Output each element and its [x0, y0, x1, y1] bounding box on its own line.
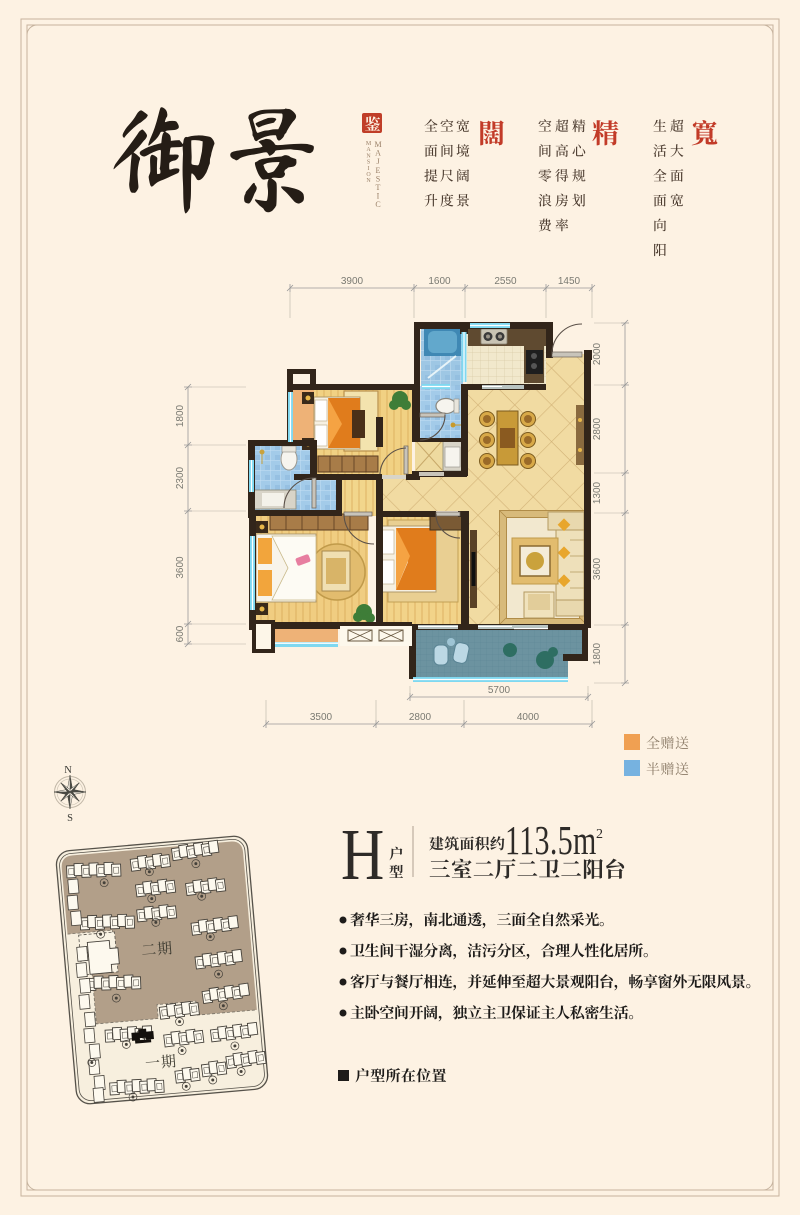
- svg-text:2000: 2000: [592, 342, 603, 365]
- svg-text:2800: 2800: [409, 712, 432, 723]
- svg-text:H: H: [341, 816, 384, 896]
- svg-text:2: 2: [596, 827, 603, 842]
- svg-text:1300: 1300: [592, 481, 603, 504]
- svg-text:M: M: [366, 141, 372, 147]
- svg-text:I: I: [368, 166, 370, 172]
- svg-text:C: C: [375, 200, 380, 209]
- svg-text:1450: 1450: [558, 276, 581, 287]
- svg-text:600: 600: [175, 625, 186, 642]
- svg-text:S: S: [367, 160, 370, 166]
- svg-text:4000: 4000: [517, 712, 540, 723]
- svg-text:2800: 2800: [592, 417, 603, 440]
- svg-text:5700: 5700: [488, 685, 511, 696]
- svg-text:113.5m: 113.5m: [505, 817, 597, 863]
- svg-text:N: N: [366, 153, 371, 159]
- svg-text:S: S: [67, 813, 73, 824]
- svg-text:3900: 3900: [341, 276, 364, 287]
- svg-text:N: N: [366, 178, 371, 184]
- svg-text:1800: 1800: [175, 404, 186, 427]
- svg-text:3600: 3600: [592, 557, 603, 580]
- svg-text:2300: 2300: [175, 466, 186, 489]
- svg-text:3600: 3600: [175, 556, 186, 579]
- svg-text:3500: 3500: [310, 712, 333, 723]
- svg-text:N: N: [64, 765, 72, 776]
- svg-text:O: O: [366, 172, 371, 178]
- svg-text:1800: 1800: [592, 642, 603, 665]
- svg-text:2550: 2550: [494, 276, 517, 287]
- svg-text:1600: 1600: [428, 276, 451, 287]
- svg-text:A: A: [366, 147, 371, 153]
